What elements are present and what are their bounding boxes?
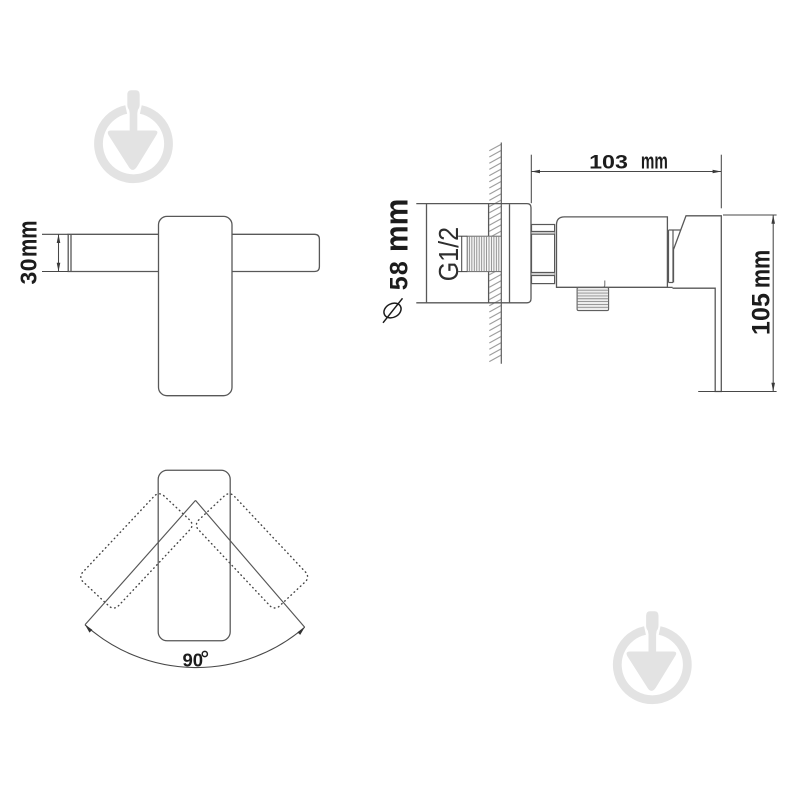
svg-text:105: 105 bbox=[748, 293, 776, 335]
svg-text:mm: mm bbox=[641, 148, 668, 173]
svg-text:mm: mm bbox=[746, 250, 776, 288]
svg-text:mm: mm bbox=[379, 199, 415, 253]
svg-text:103: 103 bbox=[589, 151, 628, 173]
svg-text:mm: mm bbox=[13, 221, 43, 258]
svg-text:G1/2: G1/2 bbox=[433, 227, 464, 281]
svg-text:90: 90 bbox=[183, 650, 204, 671]
svg-text:58: 58 bbox=[386, 261, 414, 290]
svg-text:30: 30 bbox=[16, 259, 42, 285]
